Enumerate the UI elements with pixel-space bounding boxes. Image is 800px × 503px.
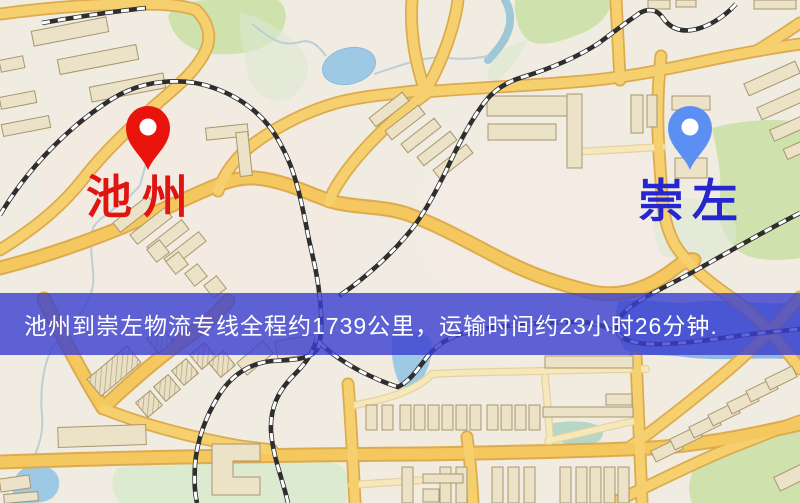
route-info-banner: 池州到崇左物流专线全程约1739公里，运输时间约23小时26分钟. — [0, 293, 800, 355]
origin-city-label: 池州 — [86, 174, 198, 220]
destination-city-label: 崇左 — [638, 178, 746, 224]
map-screenshot: 池州 崇左 池州到崇左物流专线全程约1739公里，运输时间约23小时26分钟. — [0, 0, 800, 503]
route-info-text: 池州到崇左物流专线全程约1739公里，运输时间约23小时26分钟. — [24, 307, 718, 341]
map-canvas — [0, 0, 800, 503]
